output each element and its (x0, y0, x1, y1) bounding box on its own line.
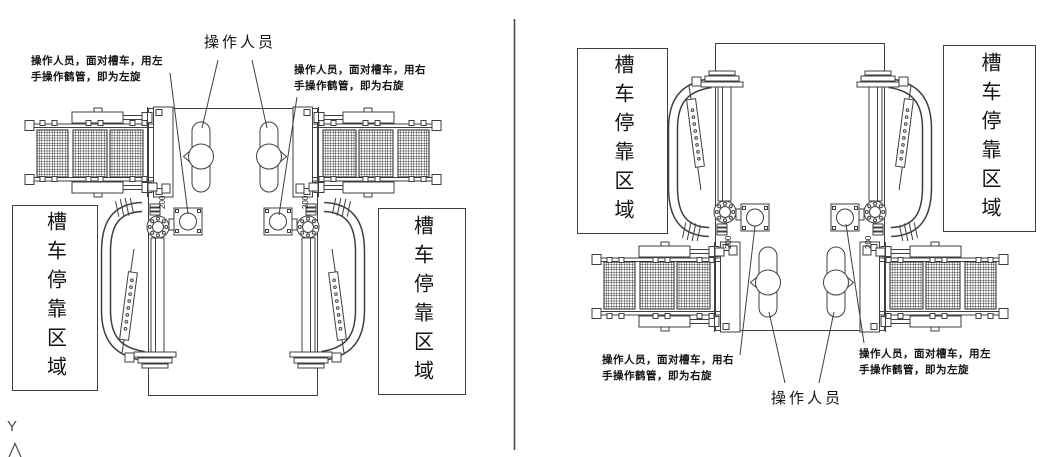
right-zone-left-box: 槽车停靠区域 (577, 48, 668, 234)
left-operator-label: 操作人员 (204, 31, 276, 52)
right-note-left-line1: 操作人员，面对槽车，用右 (602, 352, 734, 368)
dim-200-left: 200 (158, 195, 167, 209)
drawing-canvas: 200 200 200 200 操作人员 操作人员，面对槽车，用左 手操作鹤管，… (0, 0, 1046, 457)
left-note-left-line1: 操作人员，面对槽车，用左 (31, 53, 163, 69)
dim-200-right: 200 (864, 235, 873, 249)
right-note-right: 操作人员，面对槽车，用左 手操作鹤管，即为左旋 (859, 346, 991, 378)
right-zone-right-box: 槽车停靠区域 (943, 45, 1036, 232)
left-note-left-line2: 手操作鹤管，即为左旋 (31, 69, 163, 85)
dim-200-right: 200 (301, 195, 310, 209)
left-note-right: 操作人员，面对槽车，用右 手操作鹤管，即为右旋 (294, 62, 426, 94)
left-note-left: 操作人员，面对槽车，用左 手操作鹤管，即为左旋 (31, 53, 163, 85)
right-note-right-line1: 操作人员，面对槽车，用左 (859, 346, 991, 362)
left-note-right-line1: 操作人员，面对槽车，用右 (294, 62, 426, 78)
right-note-left: 操作人员，面对槽车，用右 手操作鹤管，即为右旋 (602, 352, 734, 384)
left-zone-right-box: 槽车停靠区域 (378, 208, 466, 395)
y-axis-label: Y (7, 418, 17, 435)
right-note-left-line2: 手操作鹤管，即为右旋 (602, 368, 734, 384)
right-note-right-line2: 手操作鹤管，即为左旋 (859, 362, 991, 378)
dim-200-left: 200 (724, 235, 733, 249)
left-note-right-line2: 手操作鹤管，即为右旋 (294, 78, 426, 94)
y-axis-arrow-icon (9, 444, 21, 457)
right-operator-label: 操作人员 (771, 387, 843, 408)
left-zone-left-box: 槽车停靠区域 (12, 205, 98, 391)
